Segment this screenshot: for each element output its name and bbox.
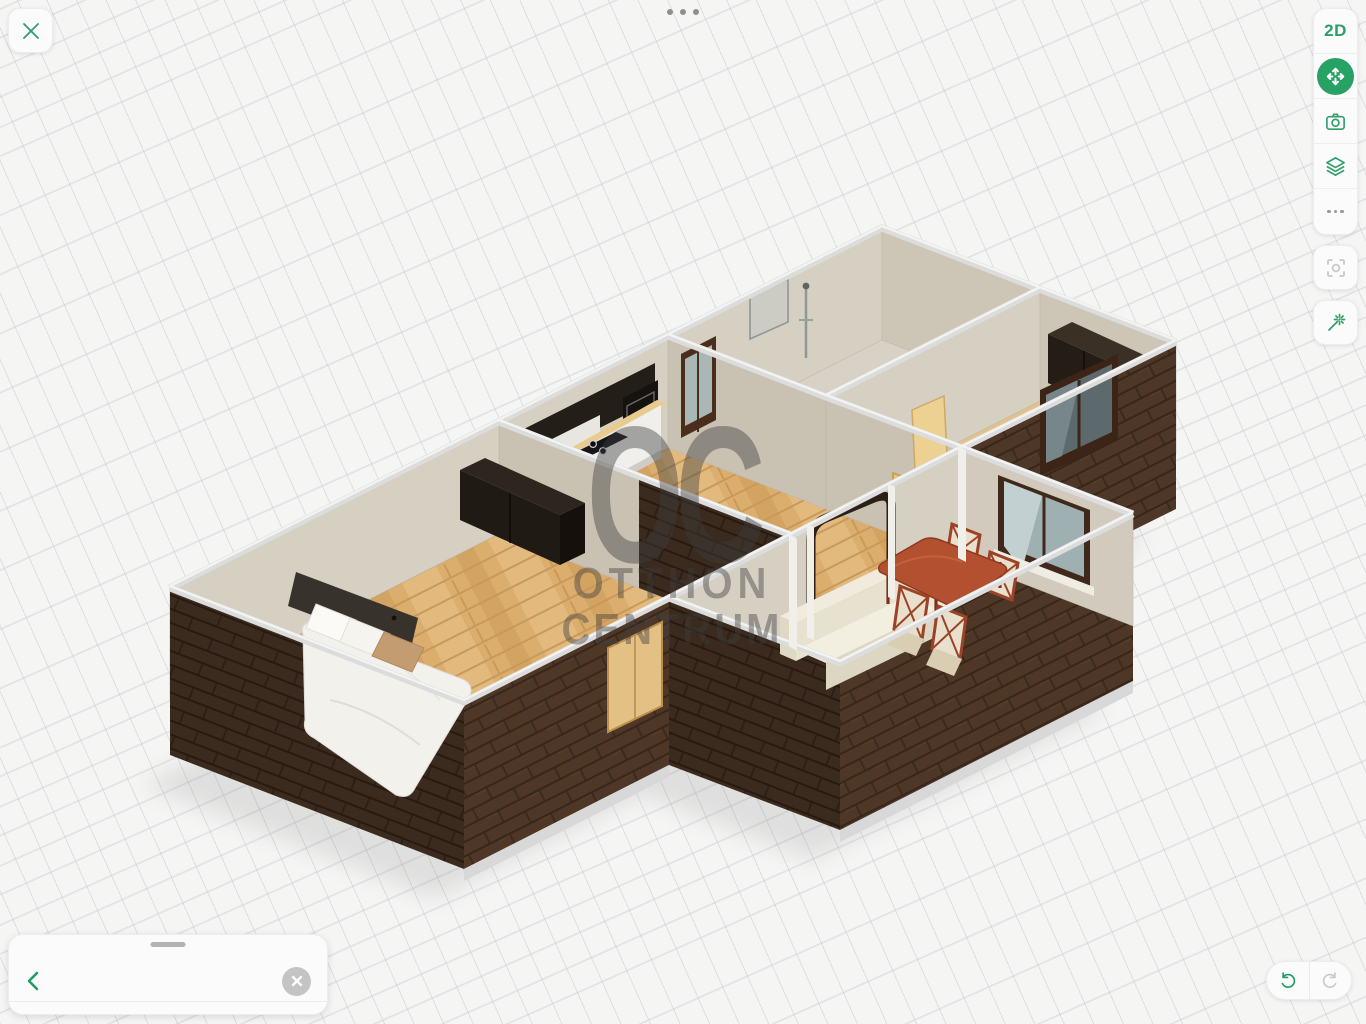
snapshot-button[interactable] xyxy=(1314,99,1357,144)
more-options-button[interactable] xyxy=(1314,189,1357,234)
dismiss-icon xyxy=(291,975,303,987)
camera-icon xyxy=(1324,110,1347,133)
bottom-sheet xyxy=(8,934,328,1015)
dismiss-sheet-button[interactable] xyxy=(282,967,311,996)
back-chevron-button[interactable] xyxy=(25,970,41,992)
view-toolbar: 2D xyxy=(1313,8,1358,235)
dot-icon xyxy=(693,9,699,15)
close-icon xyxy=(21,21,41,41)
dot-icon xyxy=(667,9,673,15)
magic-wand-icon xyxy=(1324,311,1348,335)
floorplan-3d-view[interactable] xyxy=(0,0,1366,1024)
focus-frame-button[interactable] xyxy=(1313,245,1358,290)
undo-button[interactable] xyxy=(1267,962,1310,999)
focus-frame-icon xyxy=(1324,256,1348,280)
sheet-drag-handle[interactable] xyxy=(151,942,186,947)
2d-mode-label: 2D xyxy=(1324,21,1347,41)
magic-wand-button[interactable] xyxy=(1313,300,1358,345)
sheet-divider xyxy=(9,1001,327,1002)
pan-3d-button[interactable] xyxy=(1314,54,1357,99)
undo-icon xyxy=(1277,970,1298,991)
pan-3d-icon xyxy=(1317,58,1354,95)
layers-button[interactable] xyxy=(1314,144,1357,189)
redo-button[interactable] xyxy=(1310,962,1352,999)
dot-icon xyxy=(680,9,686,15)
layers-icon xyxy=(1324,155,1347,178)
top-drag-handle[interactable] xyxy=(0,9,1366,15)
more-icon xyxy=(1327,210,1344,214)
history-controls xyxy=(1266,961,1352,1000)
redo-icon xyxy=(1320,970,1341,991)
toggle-2d-button[interactable]: 2D xyxy=(1314,9,1357,54)
